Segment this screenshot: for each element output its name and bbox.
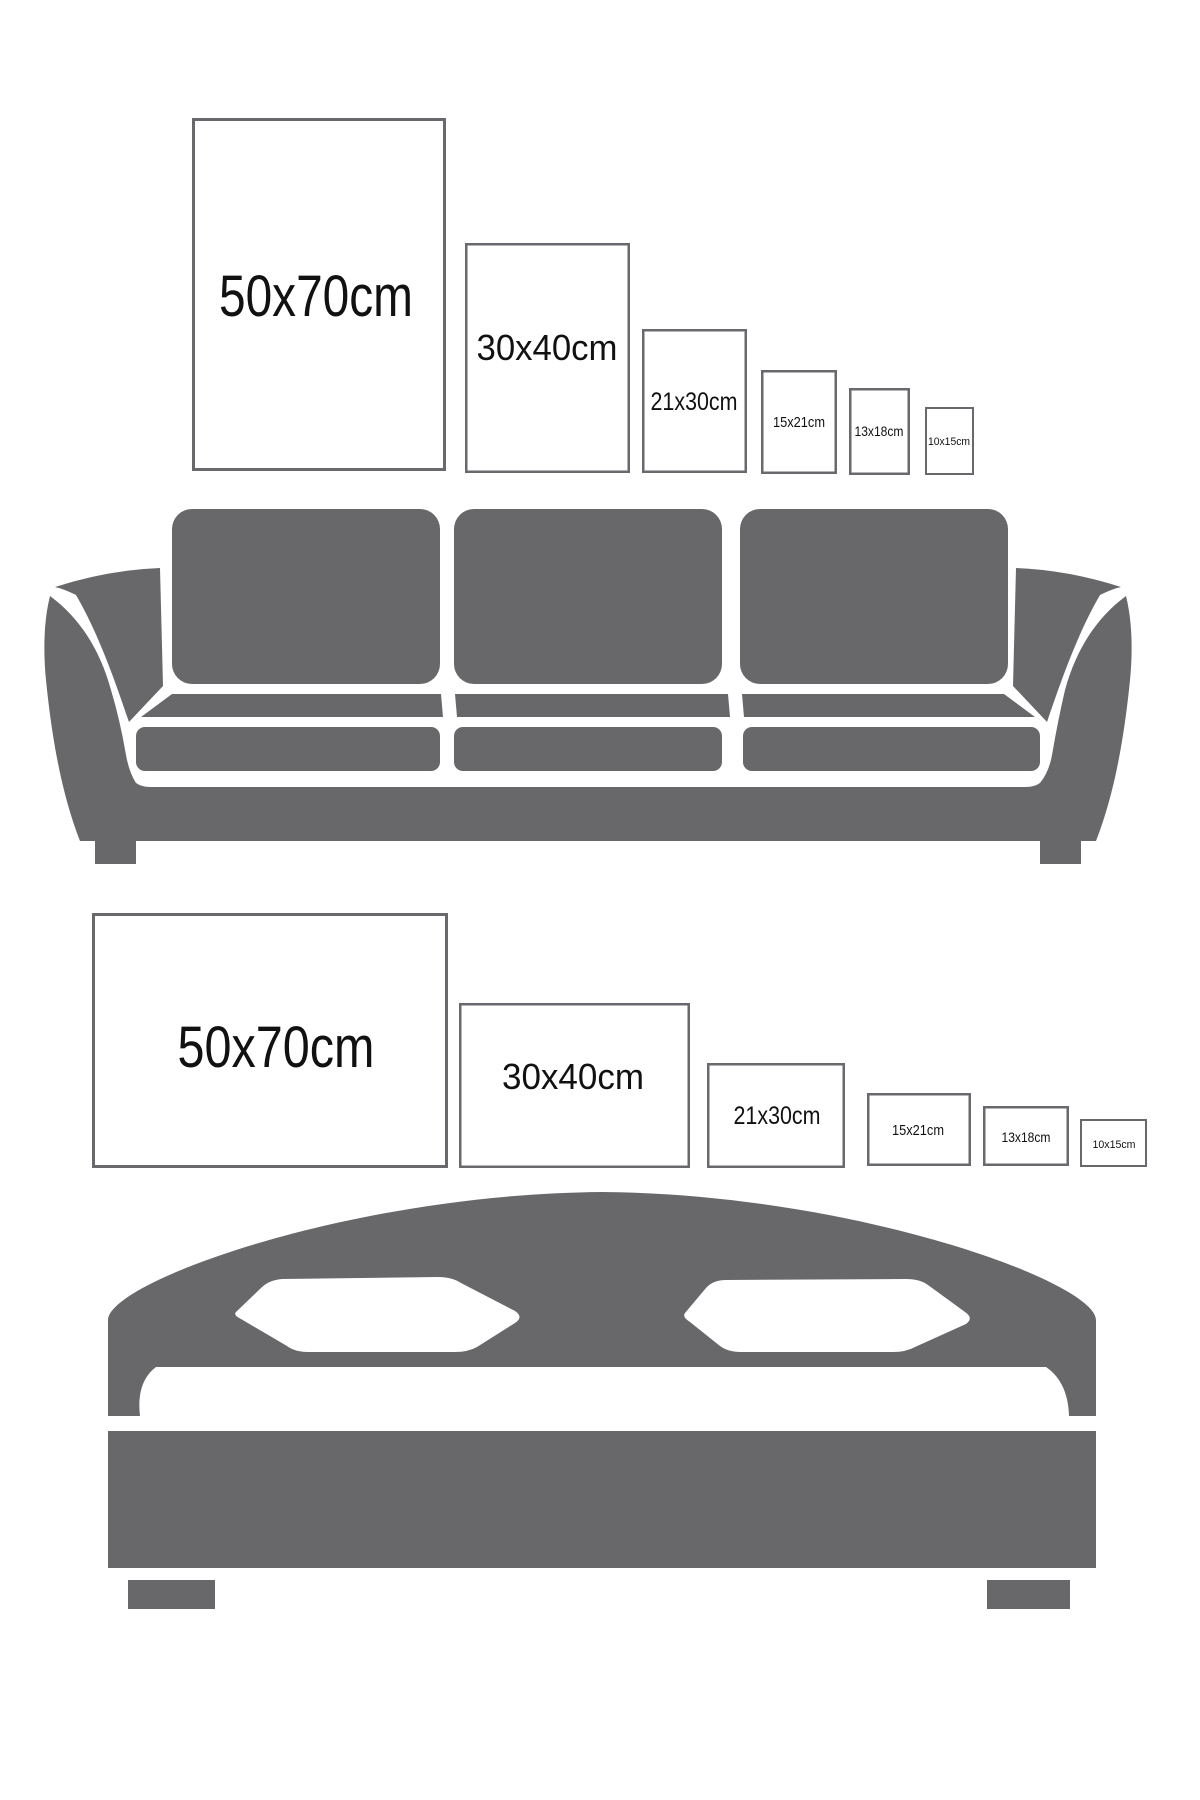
svg-text:30x40cm: 30x40cm	[502, 1056, 644, 1097]
svg-text:10x15cm: 10x15cm	[928, 436, 970, 448]
svg-text:15x21cm: 15x21cm	[892, 1122, 944, 1139]
svg-text:21x30cm: 21x30cm	[651, 388, 738, 416]
svg-text:15x21cm: 15x21cm	[773, 414, 825, 431]
svg-text:30x40cm: 30x40cm	[477, 327, 618, 368]
svg-text:50x70cm: 50x70cm	[219, 264, 413, 329]
svg-text:50x70cm: 50x70cm	[178, 1015, 375, 1080]
svg-text:13x18cm: 13x18cm	[855, 423, 904, 439]
svg-text:10x15cm: 10x15cm	[1093, 1139, 1136, 1151]
svg-text:13x18cm: 13x18cm	[1002, 1129, 1051, 1145]
svg-text:21x30cm: 21x30cm	[734, 1102, 821, 1130]
